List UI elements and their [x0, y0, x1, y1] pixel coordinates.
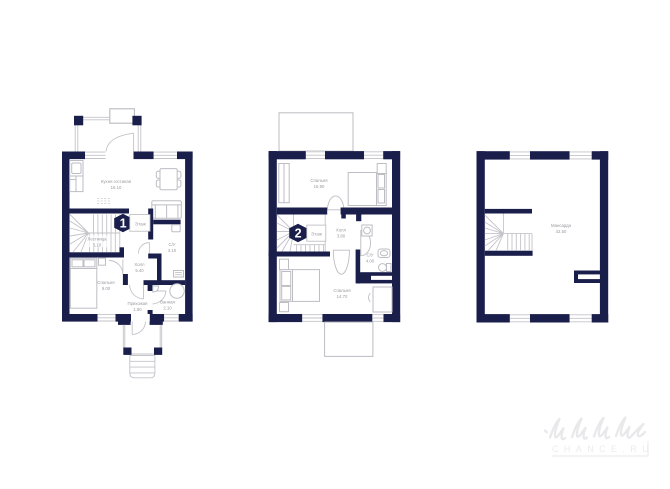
svg-text:Этаж: Этаж [311, 231, 323, 236]
svg-text:1: 1 [120, 217, 127, 231]
svg-text:Спальня: Спальня [97, 280, 115, 285]
svg-text:С/У: С/У [168, 242, 175, 247]
svg-text:Холл: Холл [134, 262, 145, 267]
svg-text:Этаж: Этаж [135, 221, 147, 226]
svg-text:2: 2 [295, 227, 302, 241]
svg-text:Лестница: Лестница [88, 237, 108, 242]
svg-text:Ванная: Ванная [160, 300, 175, 305]
svg-text:2.10: 2.10 [163, 306, 172, 311]
svg-text:4.00: 4.00 [366, 259, 375, 264]
svg-text:16.90: 16.90 [314, 184, 325, 189]
svg-text:3.80: 3.80 [337, 234, 346, 239]
svg-text:CHANCE.RU: CHANCE.RU [552, 444, 654, 454]
svg-text:Спальня: Спальня [310, 178, 328, 183]
svg-text:Кухня гостиная: Кухня гостиная [101, 179, 132, 184]
svg-text:С/У: С/У [366, 253, 373, 258]
svg-text:16.10: 16.10 [111, 185, 122, 190]
svg-text:5.40: 5.40 [135, 268, 144, 273]
svg-text:Спальня: Спальня [333, 288, 351, 293]
svg-text:5,10: 5,10 [93, 243, 102, 248]
svg-text:Прихожая: Прихожая [128, 301, 149, 306]
svg-text:9.00: 9.00 [102, 286, 111, 291]
svg-text:Мансарда: Мансарда [551, 223, 572, 228]
svg-text:1.90: 1.90 [133, 307, 142, 312]
svg-text:14.70: 14.70 [337, 294, 348, 299]
svg-text:42.50: 42.50 [556, 229, 567, 234]
svg-text:3.10: 3.10 [168, 248, 177, 253]
svg-text:Холл: Холл [336, 228, 347, 233]
